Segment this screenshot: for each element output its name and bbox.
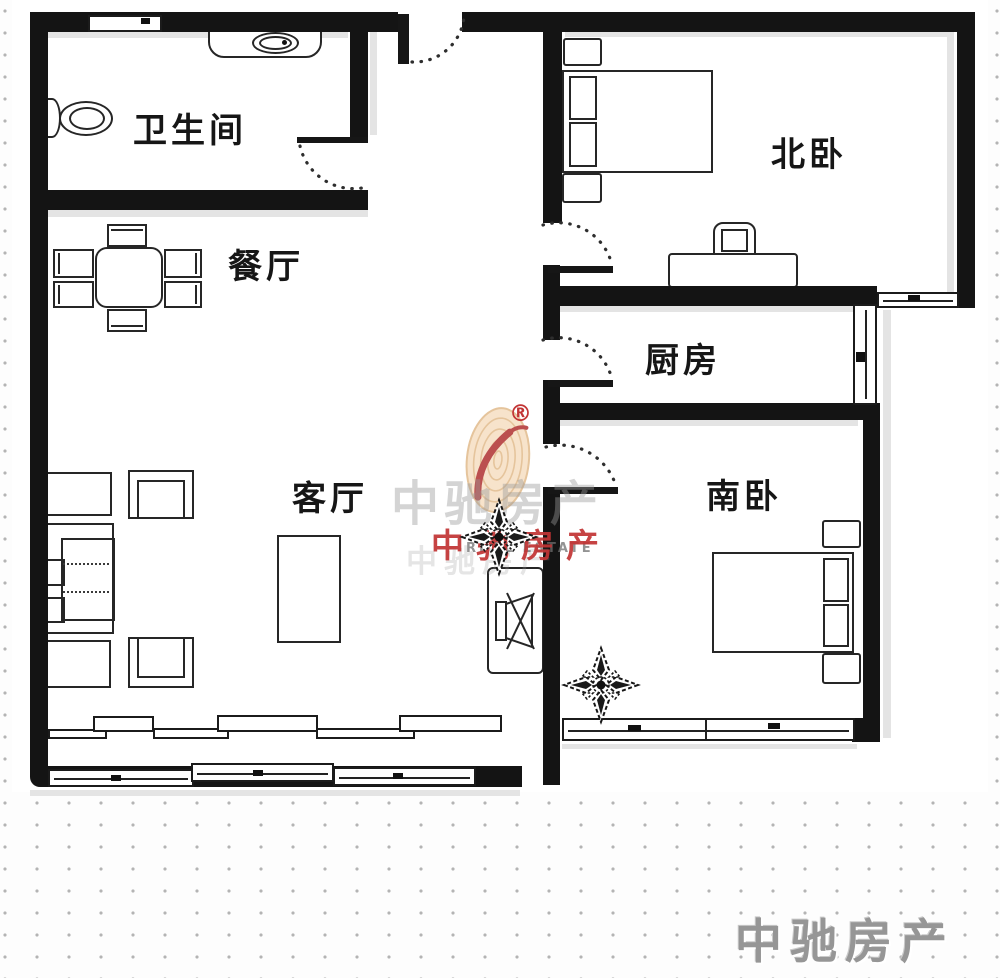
sofa bbox=[44, 523, 114, 634]
armchair bbox=[128, 470, 194, 519]
dining-chair bbox=[107, 224, 147, 247]
entry-door-leaf bbox=[398, 14, 409, 64]
wall-south-bedroom-right bbox=[863, 403, 880, 742]
wall-south-bedroom-stub bbox=[543, 380, 560, 444]
pillow bbox=[569, 76, 597, 120]
brand-logo-text: 中驰房产 bbox=[735, 903, 955, 972]
wall-bedroom-kitchen bbox=[543, 286, 877, 306]
nightstand bbox=[822, 520, 861, 548]
living-window-sash bbox=[48, 769, 194, 787]
wall-top-left bbox=[30, 12, 398, 32]
sofa-cushion-line bbox=[63, 563, 109, 565]
wall-shadow bbox=[883, 310, 891, 738]
sofa-seat bbox=[61, 538, 115, 621]
wall-shadow bbox=[560, 420, 858, 426]
room-label-kitchen: 厨房 bbox=[645, 344, 721, 378]
window-latch bbox=[768, 723, 780, 729]
room-label-bathroom: 卫生间 bbox=[133, 114, 247, 148]
dining-chair bbox=[164, 249, 202, 278]
window-latch bbox=[141, 18, 150, 24]
window-latch bbox=[253, 770, 263, 776]
wall-shadow bbox=[370, 15, 377, 135]
wall-shadow bbox=[30, 210, 368, 217]
living-window-sash bbox=[333, 767, 476, 786]
sofa-cushion-line bbox=[63, 591, 109, 593]
sink-drain bbox=[282, 40, 287, 45]
bathroom-door-leaf bbox=[297, 137, 368, 143]
window-latch bbox=[628, 725, 641, 731]
armchair bbox=[128, 637, 194, 688]
window-latch bbox=[908, 295, 920, 301]
floorplan-canvas: 卫生间 北卧 餐厅 厨房 客厅 南卧 ® 中驰房产 中驰房产 中驰房产 REAL… bbox=[0, 0, 1000, 978]
sliding-door-panel bbox=[93, 716, 154, 732]
wall-shadow bbox=[30, 790, 520, 796]
window-latch bbox=[111, 775, 121, 781]
bathroom-window bbox=[88, 15, 162, 32]
pillow bbox=[569, 122, 597, 167]
wall-bathroom-right bbox=[350, 12, 368, 137]
desk-chair bbox=[713, 222, 756, 257]
wall-left bbox=[30, 12, 48, 787]
wall-shadow bbox=[947, 32, 954, 292]
dining-table bbox=[95, 247, 163, 308]
room-label-north-bedroom: 北卧 bbox=[771, 138, 847, 172]
wall-shadow bbox=[557, 306, 872, 312]
compass-flower-icon bbox=[459, 497, 539, 577]
dining-chair bbox=[53, 249, 94, 278]
coffee-table bbox=[277, 535, 341, 643]
wall-top-right bbox=[462, 12, 975, 32]
side-table bbox=[45, 472, 112, 516]
tv-cabinet bbox=[487, 567, 544, 674]
dining-chair bbox=[107, 309, 147, 332]
wall-kitchen-stub bbox=[543, 265, 560, 340]
bed bbox=[712, 552, 854, 653]
room-label-south-bedroom: 南卧 bbox=[706, 480, 782, 514]
wall-bathroom-bottom bbox=[30, 190, 368, 210]
room-label-living: 客厅 bbox=[292, 482, 368, 516]
wall-north-bedroom-left bbox=[543, 12, 562, 223]
window-divider bbox=[705, 720, 707, 739]
nightstand bbox=[563, 38, 602, 66]
tv-icon bbox=[489, 569, 542, 672]
sofa-armrest bbox=[46, 597, 65, 623]
window-latch bbox=[393, 773, 403, 779]
registered-trademark-icon: ® bbox=[509, 401, 532, 427]
bed bbox=[562, 70, 713, 173]
nightstand bbox=[822, 653, 861, 684]
dining-chair bbox=[53, 281, 94, 308]
compass-flower-icon bbox=[561, 645, 641, 725]
desk bbox=[668, 253, 798, 288]
nightstand bbox=[562, 173, 602, 203]
wall-kitchen-bottom bbox=[557, 403, 877, 420]
wall-shadow bbox=[562, 744, 857, 749]
kitchen-door-leaf bbox=[548, 380, 613, 387]
wall-corner-south bbox=[852, 718, 880, 742]
north-bedroom-door-leaf bbox=[548, 266, 613, 273]
side-table bbox=[45, 640, 111, 688]
dining-chair bbox=[164, 281, 202, 308]
sliding-door-panel bbox=[217, 715, 318, 732]
room-label-dining: 餐厅 bbox=[228, 250, 304, 284]
toilet-bowl-inner bbox=[69, 107, 105, 130]
pillow bbox=[823, 604, 849, 647]
pillow bbox=[823, 558, 849, 602]
sliding-door-panel bbox=[399, 715, 502, 732]
wall-right-upper bbox=[957, 12, 975, 308]
window-latch bbox=[856, 352, 865, 362]
sink-inner bbox=[259, 36, 292, 50]
